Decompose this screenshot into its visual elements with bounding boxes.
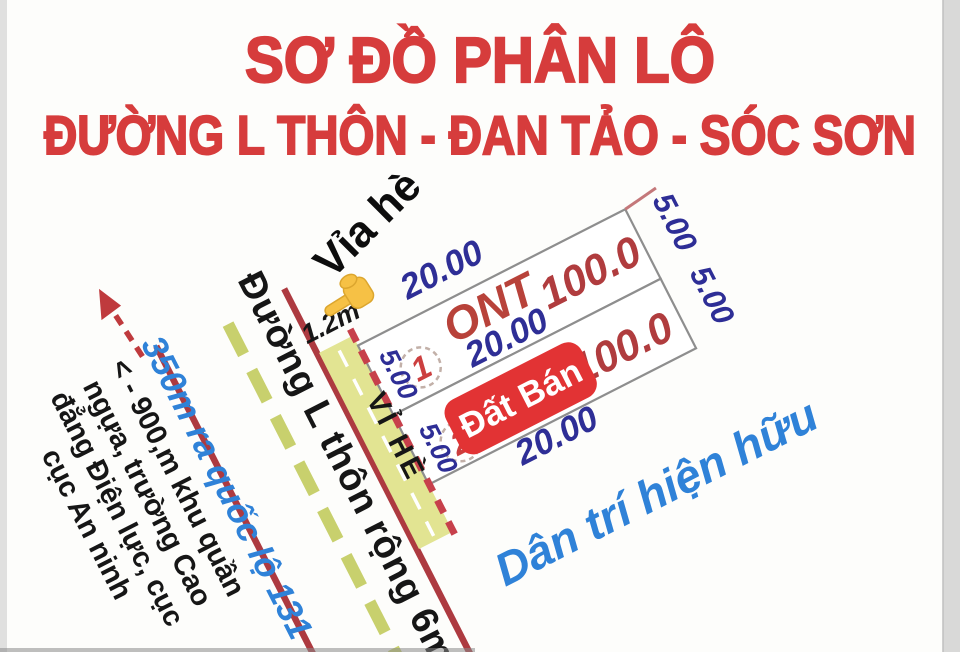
photo-bottom-edge — [0, 648, 475, 652]
land-plot-diagram: SƠ ĐỒ PHÂN LÔ ĐƯỜNG L THÔN - ĐAN TẢO - S… — [0, 0, 960, 652]
photo-right-edge — [943, 0, 960, 652]
photo-left-edge — [0, 0, 7, 652]
page-subtitle: ĐƯỜNG L THÔN - ĐAN TẢO - SÓC SƠN — [44, 104, 916, 166]
diagram-canvas: SƠ ĐỒ PHÂN LÔ ĐƯỜNG L THÔN - ĐAN TẢO - S… — [0, 0, 960, 652]
page-title: SƠ ĐỒ PHÂN LÔ — [245, 23, 715, 96]
